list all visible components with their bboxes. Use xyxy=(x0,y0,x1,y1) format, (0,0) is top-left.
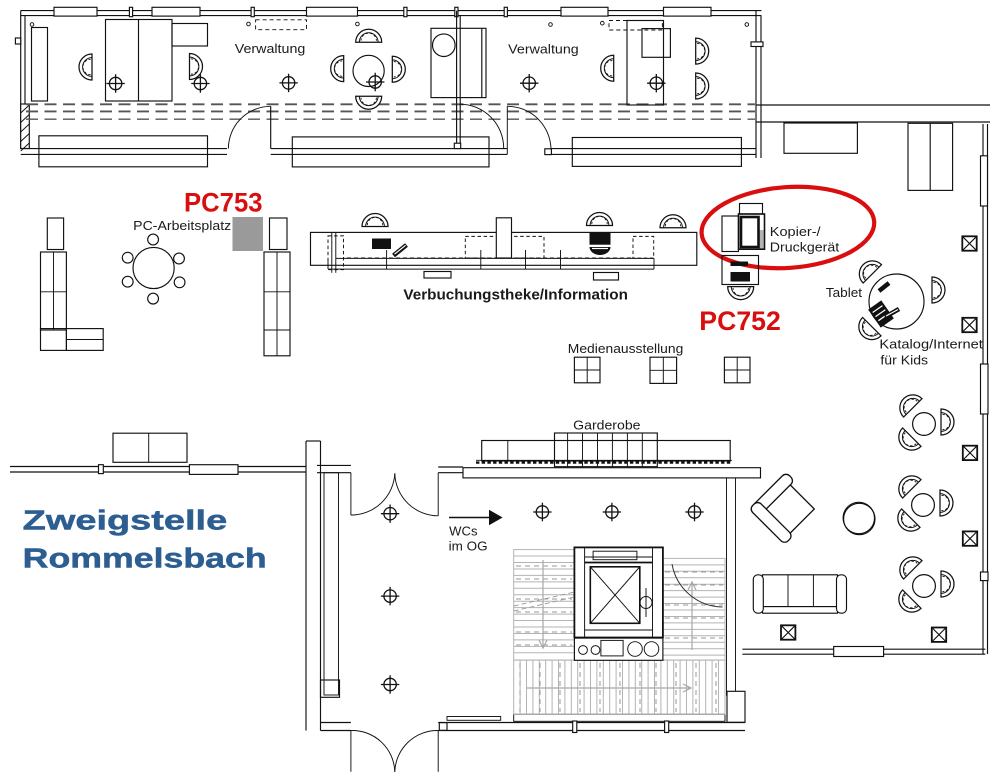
svg-text:Verbuchungstheke/Information: Verbuchungstheke/Information xyxy=(403,288,628,304)
svg-text:PC-Arbeitsplatz: PC-Arbeitsplatz xyxy=(133,218,231,233)
svg-text:Katalog/Internet: Katalog/Internet xyxy=(879,337,983,352)
svg-text:Druckgerät: Druckgerät xyxy=(770,239,840,254)
svg-text:Verwaltung: Verwaltung xyxy=(235,41,305,56)
svg-text:WCs: WCs xyxy=(449,523,478,538)
svg-text:Garderobe: Garderobe xyxy=(573,418,640,433)
svg-text:PC753: PC753 xyxy=(184,187,263,217)
svg-text:für Kids: für Kids xyxy=(880,352,928,367)
svg-text:Rommelsbach: Rommelsbach xyxy=(23,543,267,574)
svg-text:Kopier-/: Kopier-/ xyxy=(770,224,821,239)
svg-text:Zweigstelle: Zweigstelle xyxy=(23,505,228,536)
svg-text:Tablet: Tablet xyxy=(826,285,863,300)
svg-text:Verwaltung: Verwaltung xyxy=(508,42,579,57)
svg-text:Medienausstellung: Medienausstellung xyxy=(568,341,684,356)
svg-text:PC752: PC752 xyxy=(699,306,781,336)
svg-text:im OG: im OG xyxy=(449,539,488,554)
